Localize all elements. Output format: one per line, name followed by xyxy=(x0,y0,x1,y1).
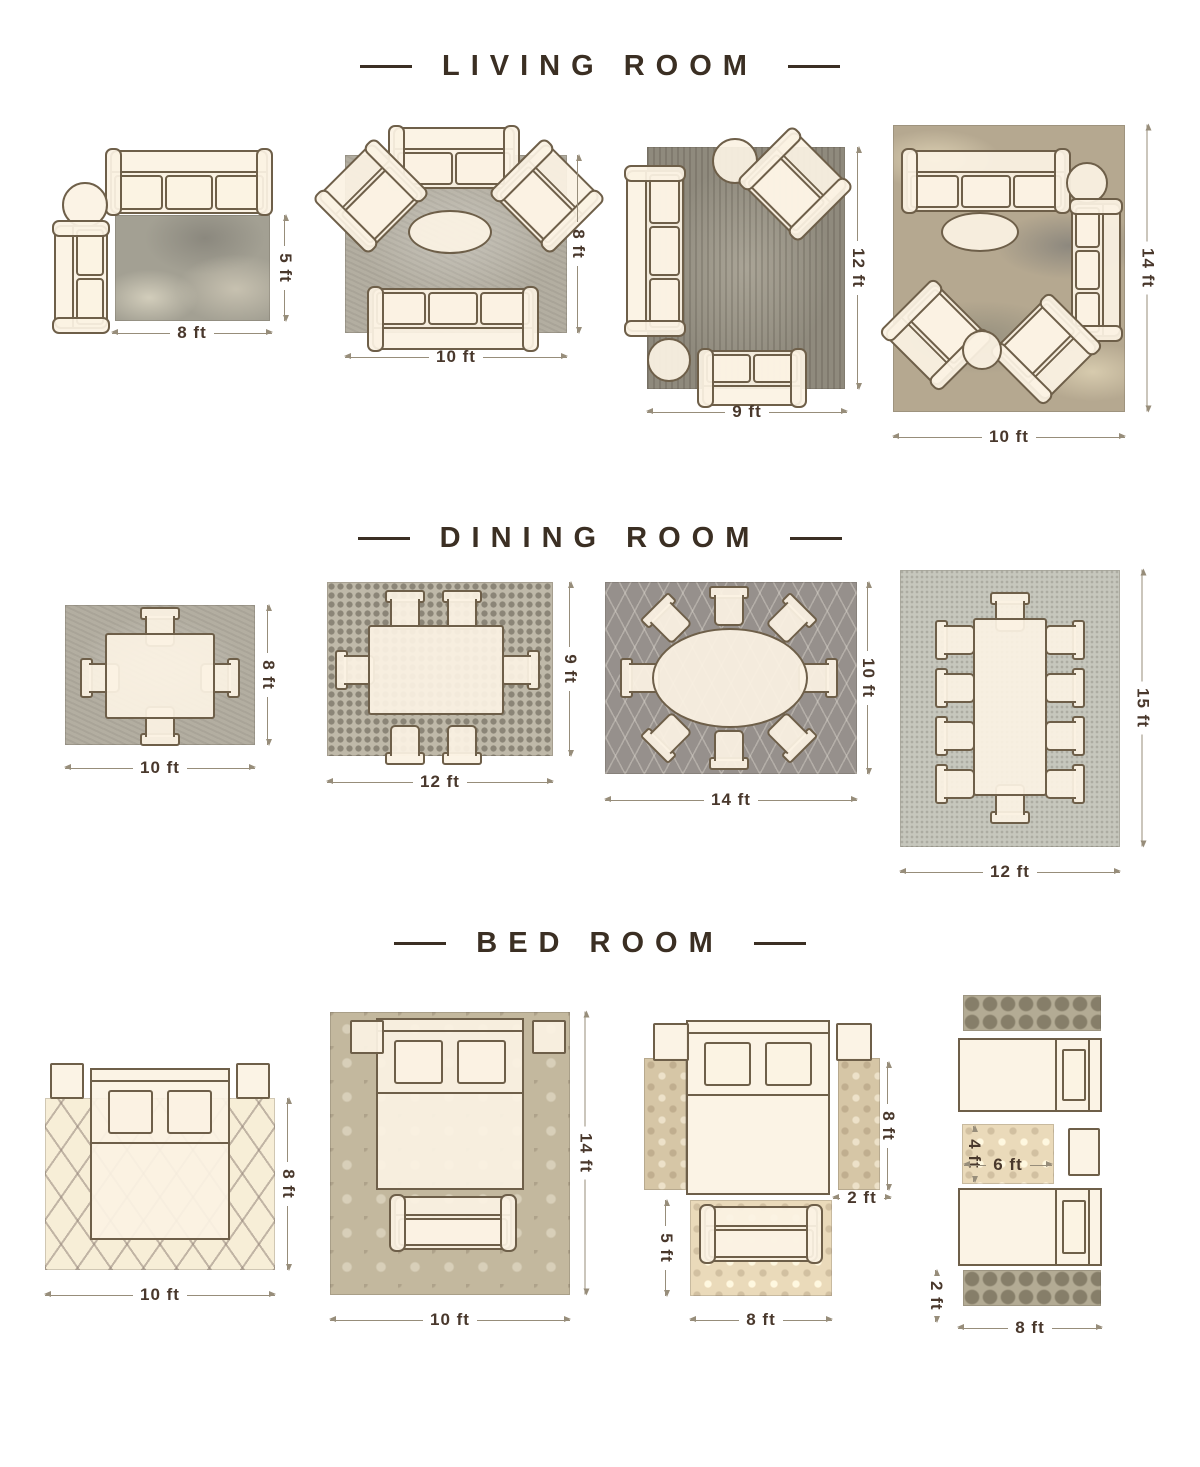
dining-chair xyxy=(935,671,975,705)
runner-rug xyxy=(963,1270,1101,1306)
rug-width-dimension: 12 ft xyxy=(900,862,1120,882)
rug-width-dimension: 10 ft xyxy=(45,1285,275,1305)
bench-sofa xyxy=(394,1196,512,1250)
title-dash-right xyxy=(788,65,840,68)
bed xyxy=(376,1018,524,1190)
section-title-dining-room: DINING ROOM xyxy=(0,522,1200,555)
nightstand xyxy=(1068,1128,1100,1176)
nightstand xyxy=(236,1063,270,1099)
rug-width-dimension: 8 ft xyxy=(112,323,272,343)
runner-width-dimension: 2 ft xyxy=(926,1270,946,1306)
runner-width-dimension: 2 ft xyxy=(833,1188,891,1208)
title-dash-right xyxy=(754,942,806,945)
rug-height-dimension: 10 ft xyxy=(858,582,878,774)
bed xyxy=(90,1068,230,1240)
nightstand xyxy=(532,1020,566,1054)
area-rug xyxy=(115,215,270,321)
runner-rug xyxy=(963,995,1101,1031)
section-title-living-room: LIVING ROOM xyxy=(0,50,1200,83)
three-seat-sofa xyxy=(626,170,684,332)
dining-chair xyxy=(1045,719,1085,753)
rug-width-dimension: 14 ft xyxy=(605,790,857,810)
section-title: LIVING ROOM xyxy=(442,50,758,83)
two-seat-sofa xyxy=(54,225,108,329)
nightstand xyxy=(836,1023,872,1061)
rug-height-dimension: 8 ft xyxy=(258,605,278,745)
twin-bed xyxy=(958,1038,1102,1112)
accent-rug-width-dimension: 6 ft xyxy=(964,1155,1052,1175)
rug-height-dimension: 8 ft xyxy=(278,1098,298,1270)
nightstand xyxy=(653,1023,689,1061)
sofa xyxy=(704,1206,818,1262)
rug-height-dimension: 8 ft xyxy=(568,155,588,333)
nightstand xyxy=(50,1063,84,1099)
accent-rug-height-dimension: 5 ft xyxy=(656,1200,676,1296)
rug-height-dimension: 5 ft xyxy=(275,215,295,321)
title-dash-left xyxy=(394,942,446,945)
dining-chair xyxy=(388,590,422,630)
runner-rug xyxy=(838,1058,880,1190)
dining-chair xyxy=(935,623,975,657)
rug-height-dimension: 12 ft xyxy=(848,147,868,389)
dining-table xyxy=(105,633,215,719)
three-seat-sofa xyxy=(906,150,1066,212)
dining-table xyxy=(973,618,1047,796)
oval-dining-table xyxy=(652,628,808,728)
accent-rug-width-dimension: 8 ft xyxy=(690,1310,832,1330)
runner-height-dimension: 8 ft xyxy=(878,1062,898,1190)
rug-width-dimension: 10 ft xyxy=(65,758,255,778)
rug-width-dimension: 10 ft xyxy=(330,1310,570,1330)
dining-chair xyxy=(388,725,422,765)
title-dash-left xyxy=(358,537,410,540)
dining-chair xyxy=(445,725,479,765)
section-title: DINING ROOM xyxy=(440,522,761,555)
three-seat-sofa xyxy=(110,150,268,214)
dining-chair xyxy=(500,653,540,687)
section-title: BED ROOM xyxy=(476,927,724,960)
round-accent-table xyxy=(962,330,1002,370)
rug-width-dimension: 12 ft xyxy=(327,772,553,792)
section-title-bed-room: BED ROOM xyxy=(0,927,1200,960)
three-seat-sofa xyxy=(1071,203,1121,337)
dining-chair xyxy=(935,719,975,753)
rug-height-dimension: 14 ft xyxy=(1138,125,1158,412)
dining-chair xyxy=(712,730,746,770)
rug-height-dimension: 15 ft xyxy=(1133,570,1153,847)
title-dash-left xyxy=(360,65,412,68)
twin-bed xyxy=(958,1188,1102,1266)
dining-chair xyxy=(712,586,746,626)
dining-table xyxy=(368,625,504,715)
round-accent-table xyxy=(647,338,691,382)
bed xyxy=(686,1020,830,1195)
two-seat-sofa xyxy=(702,350,802,406)
title-dash-right xyxy=(790,537,842,540)
dining-chair xyxy=(935,767,975,801)
three-seat-sofa xyxy=(372,288,534,350)
dining-chair xyxy=(1045,671,1085,705)
rug-width-dimension: 9 ft xyxy=(647,402,847,422)
dining-chair xyxy=(1045,767,1085,801)
oval-coffee-table xyxy=(941,212,1019,252)
rug-size-guide: LIVING ROOM 5 ft 8 ft xyxy=(0,0,1200,1467)
dining-chair xyxy=(1045,623,1085,657)
runner-length-dimension: 8 ft xyxy=(958,1318,1102,1338)
rug-height-dimension: 14 ft xyxy=(576,1012,596,1295)
nightstand xyxy=(350,1020,384,1054)
rug-height-dimension: 9 ft xyxy=(560,582,580,756)
rug-width-dimension: 10 ft xyxy=(345,347,567,367)
oval-coffee-table xyxy=(408,210,492,254)
runner-rug xyxy=(644,1058,686,1190)
rug-width-dimension: 10 ft xyxy=(893,427,1125,447)
dining-chair xyxy=(445,590,479,630)
